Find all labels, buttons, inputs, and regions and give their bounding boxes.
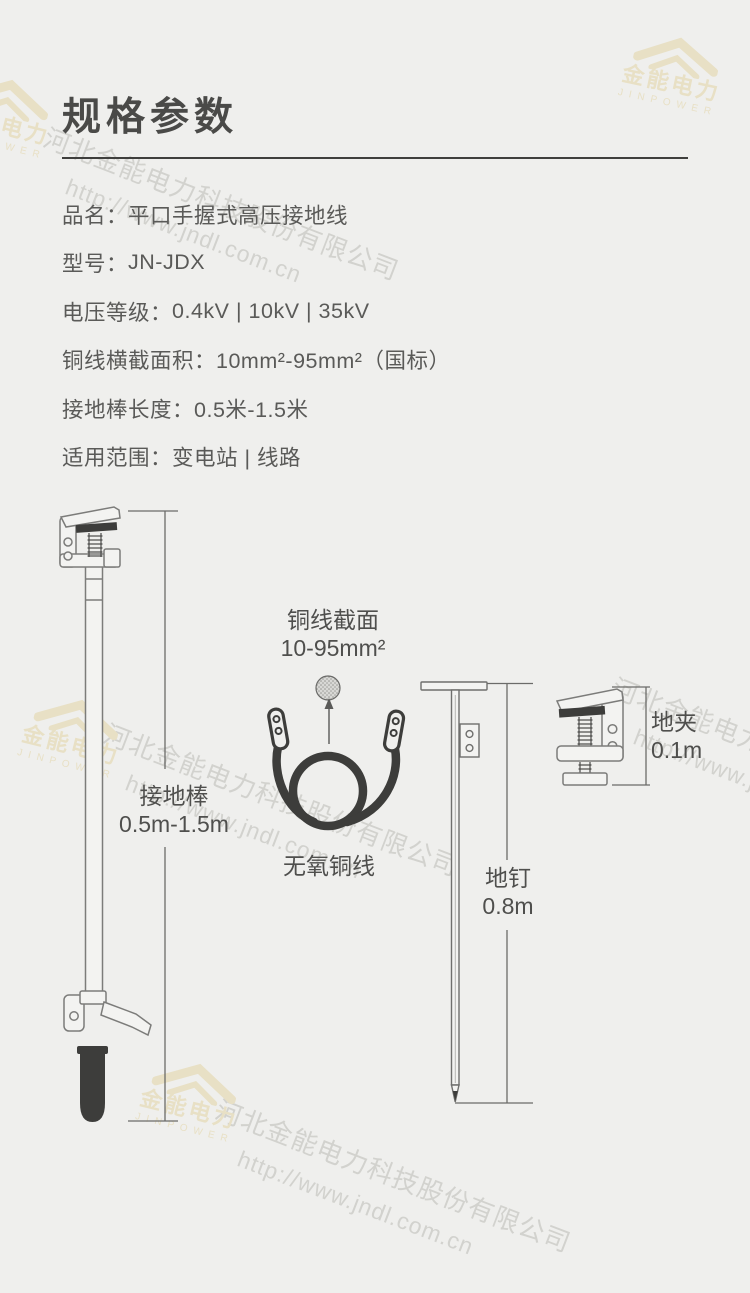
spec-row-rod-length: 接地棒长度：0.5米-1.5米 <box>62 384 450 433</box>
spec-value: 0.5米-1.5米 <box>194 393 308 424</box>
spec-row-product-name: 品名：平口手握式高压接地线 <box>62 190 450 239</box>
spec-value: 10mm²-95mm²（国标） <box>216 344 450 375</box>
spec-label: 电压等级： <box>62 296 172 327</box>
nail-dimension-text: 0.8m <box>482 892 533 920</box>
spec-row-wire-section: 铜线横截面积：10mm²-95mm²（国标） <box>62 336 450 385</box>
rod-label-text: 接地棒 <box>119 782 229 810</box>
spec-value: 平口手握式高压接地线 <box>128 199 348 230</box>
spec-label: 品名： <box>62 199 128 230</box>
nail-label-text: 地钉 <box>482 864 533 892</box>
spec-row-voltage: 电压等级：0.4kV | 10kV | 35kV <box>62 287 450 336</box>
ground-clamp-drawing <box>557 689 623 785</box>
clamp-dimension-text: 0.1m <box>651 736 702 764</box>
spec-label: 型号： <box>62 247 128 278</box>
spec-value: 0.4kV | 10kV | 35kV <box>172 299 370 324</box>
wire-name-text: 无氧铜线 <box>283 852 375 880</box>
wire-section-label: 铜线截面 10-95mm² <box>281 606 386 662</box>
clamp-size-label: 地夹 0.1m <box>651 708 702 764</box>
copper-wire-drawing <box>268 676 405 826</box>
spec-row-application: 适用范围：变电站 | 线路 <box>62 433 450 482</box>
spec-label: 适用范围： <box>62 441 172 472</box>
nail-length-label: 地钉 0.8m <box>482 864 533 920</box>
spec-list: 品名：平口手握式高压接地线 型号：JN-JDX 电压等级：0.4kV | 10k… <box>62 190 450 481</box>
ground-nail-drawing <box>421 682 487 1102</box>
wire-section-value: 10-95mm² <box>281 634 386 662</box>
spec-value: JN-JDX <box>128 250 205 275</box>
product-spec-page: { "page": { "title": "规格参数" }, "specs": … <box>0 0 750 1181</box>
wire-section-title: 铜线截面 <box>281 606 386 634</box>
product-diagram <box>0 0 750 1181</box>
title-divider <box>62 157 688 159</box>
rod-length-label: 接地棒 0.5m-1.5m <box>119 782 229 838</box>
page-title: 规格参数 <box>62 86 238 142</box>
spec-value: 变电站 | 线路 <box>172 441 301 472</box>
rod-dimension-text: 0.5m-1.5m <box>119 810 229 838</box>
wire-name-label: 无氧铜线 <box>283 852 375 880</box>
spec-row-model: 型号：JN-JDX <box>62 239 450 288</box>
spec-label: 接地棒长度： <box>62 393 194 424</box>
spec-label: 铜线横截面积： <box>62 344 216 375</box>
clamp-label-text: 地夹 <box>651 708 702 736</box>
